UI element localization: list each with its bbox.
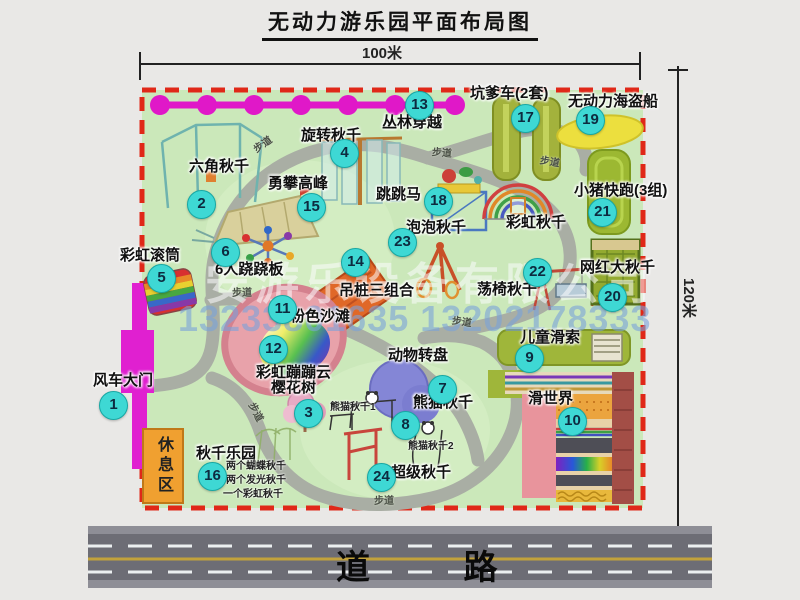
badge-21: 21 [588, 198, 617, 227]
footpath-label: 步道 [539, 151, 561, 169]
page-title: 无动力游乐园平面布局图 [262, 6, 538, 41]
label-super-swing: 超级秋千 [391, 465, 451, 482]
park-layout-map: 安游乐设备有限公司 13233801635 13202178333 无动力游乐园… [0, 0, 800, 600]
label-pit-cars: 坑爹车(2套) [470, 86, 548, 103]
badge-1: 1 [99, 391, 128, 420]
badge-4: 4 [330, 139, 359, 168]
label-bubble-swing: 泡泡秋千 [406, 220, 466, 237]
badge-19: 19 [576, 106, 605, 135]
badge-12: 12 [259, 335, 288, 364]
footpath-label: 步道 [374, 492, 394, 507]
label-hexagon-swing: 六角秋千 [189, 159, 249, 176]
badge-23: 23 [388, 228, 417, 257]
badge-7: 7 [428, 375, 457, 404]
badge-8: 8 [391, 411, 420, 440]
height-dimension-label: 120米 [679, 278, 700, 318]
label-cherry-tree: 樱花树 [271, 380, 316, 397]
badge-16: 16 [198, 462, 227, 491]
badge-9: 9 [515, 344, 544, 373]
swing-park-note-1: 两个蝴蝶秋千 [226, 460, 286, 473]
rest-area-box: 休息区 [142, 428, 184, 504]
badge-22: 22 [523, 258, 552, 287]
badge-11: 11 [268, 295, 297, 324]
badge-20: 20 [598, 283, 627, 312]
label-big-swing: 网红大秋千 [580, 260, 655, 277]
badge-17: 17 [511, 104, 540, 133]
label-panda-swing-2: 熊猫秋千2 [408, 440, 454, 453]
badge-3: 3 [294, 399, 323, 428]
label-hanging-piles: 吊桩三组合 [339, 283, 414, 300]
badge-6: 6 [211, 238, 240, 267]
label-animal-turntable: 动物转盘 [388, 348, 448, 365]
footpath-label: 步道 [431, 143, 452, 160]
badge-15: 15 [297, 193, 326, 222]
label-piggy-run: 小猪快跑(3组) [574, 183, 667, 200]
label-windmill-gate: 风车大门 [93, 373, 153, 390]
footpath-label: 步道 [451, 312, 473, 330]
swing-park-note-3: 一个彩虹秋千 [223, 488, 283, 501]
footpath-label: 步道 [232, 284, 252, 299]
label-climbing-peak: 勇攀高峰 [268, 176, 328, 193]
width-dimension-label: 100米 [362, 42, 402, 63]
badge-5: 5 [147, 264, 176, 293]
badge-24: 24 [367, 463, 396, 492]
watermark-phone: 13233801635 13202178333 [178, 298, 651, 340]
label-rainbow-roller: 彩虹滚筒 [120, 248, 180, 265]
label-rainbow-cloud: 彩虹蹦蹦云 [256, 365, 331, 382]
road-label: 道 路 [336, 540, 539, 589]
badge-14: 14 [341, 248, 370, 277]
label-pink-beach: 粉色沙滩 [290, 309, 350, 326]
label-jumping-horse: 跳跳马 [376, 187, 421, 204]
badge-18: 18 [424, 187, 453, 216]
swing-park-note-2: 两个发光秋千 [226, 474, 286, 487]
badge-2: 2 [187, 190, 216, 219]
label-slide-world: 滑世界 [528, 391, 573, 408]
label-panda-swing-1: 熊猫秋千1 [330, 401, 376, 414]
label-swing-chairs: 荡椅秋千 [477, 282, 537, 299]
badge-10: 10 [558, 407, 587, 436]
label-rainbow-swing: 彩虹秋千 [506, 215, 566, 232]
badge-13: 13 [405, 91, 434, 120]
